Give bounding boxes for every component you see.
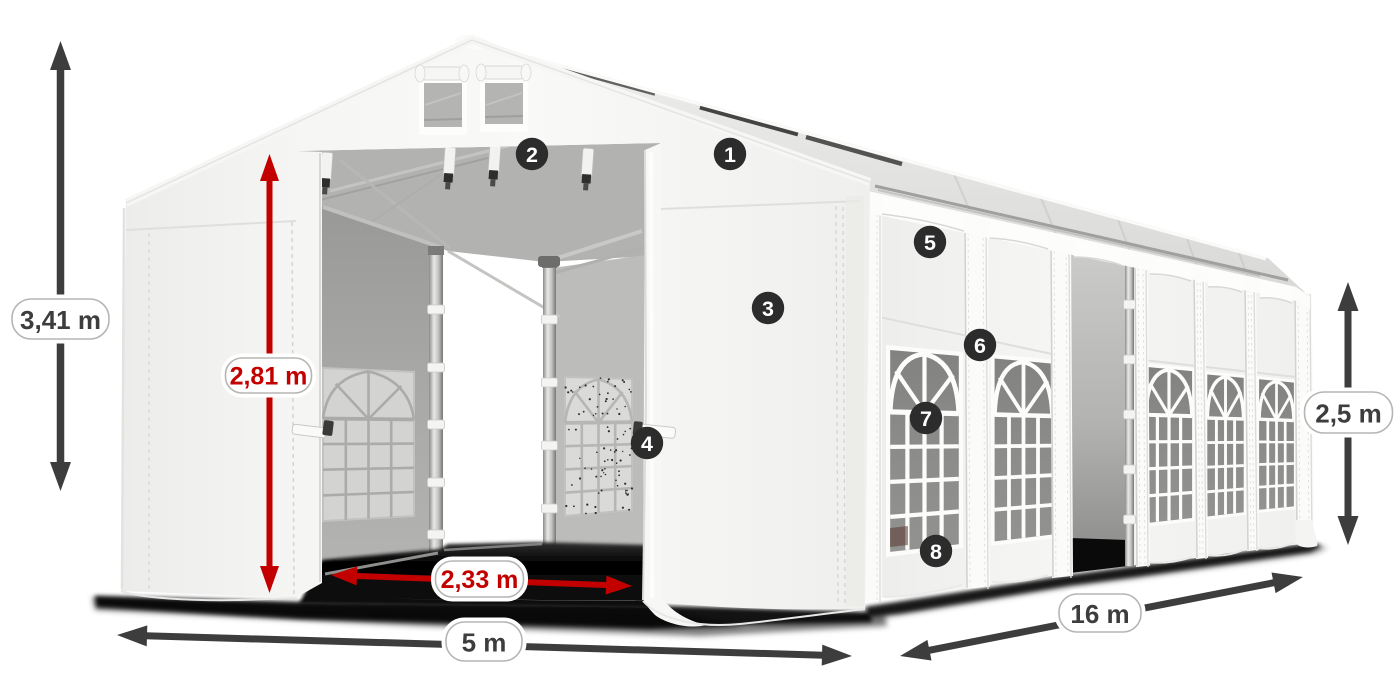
svg-text:4: 4 <box>641 432 653 456</box>
svg-text:3: 3 <box>762 297 774 321</box>
svg-text:8: 8 <box>930 540 942 564</box>
svg-text:2,33 m: 2,33 m <box>441 566 519 594</box>
svg-text:16 m: 16 m <box>1070 599 1129 629</box>
svg-text:2,5 m: 2,5 m <box>1315 399 1382 429</box>
svg-text:7: 7 <box>920 407 932 431</box>
svg-text:2: 2 <box>526 143 538 167</box>
svg-text:2,81 m: 2,81 m <box>230 363 308 391</box>
svg-text:6: 6 <box>974 334 986 358</box>
svg-text:5 m: 5 m <box>462 628 507 658</box>
svg-text:1: 1 <box>724 143 736 167</box>
svg-text:5: 5 <box>924 231 936 255</box>
svg-text:3,41 m: 3,41 m <box>20 305 101 335</box>
